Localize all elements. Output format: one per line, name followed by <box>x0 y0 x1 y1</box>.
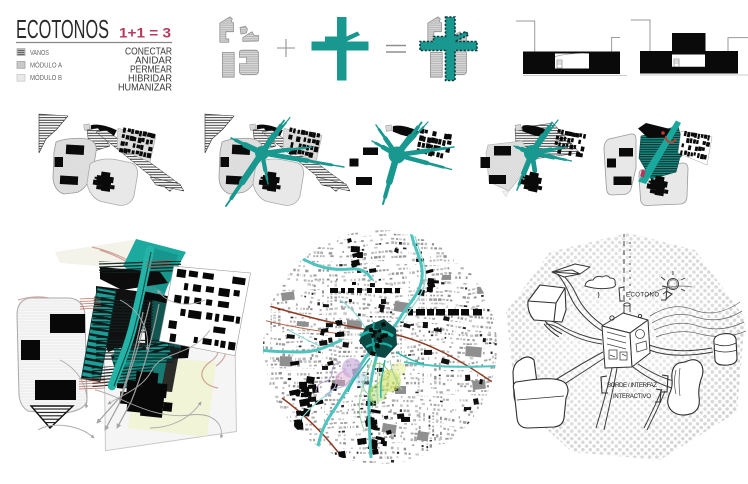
svg-text:ECOTONO: ECOTONO <box>626 293 659 299</box>
svg-text:BORDE / INTERFAZ: BORDE / INTERFAZ <box>607 382 657 389</box>
svg-text:INTERACTIVO: INTERACTIVO <box>613 394 651 400</box>
